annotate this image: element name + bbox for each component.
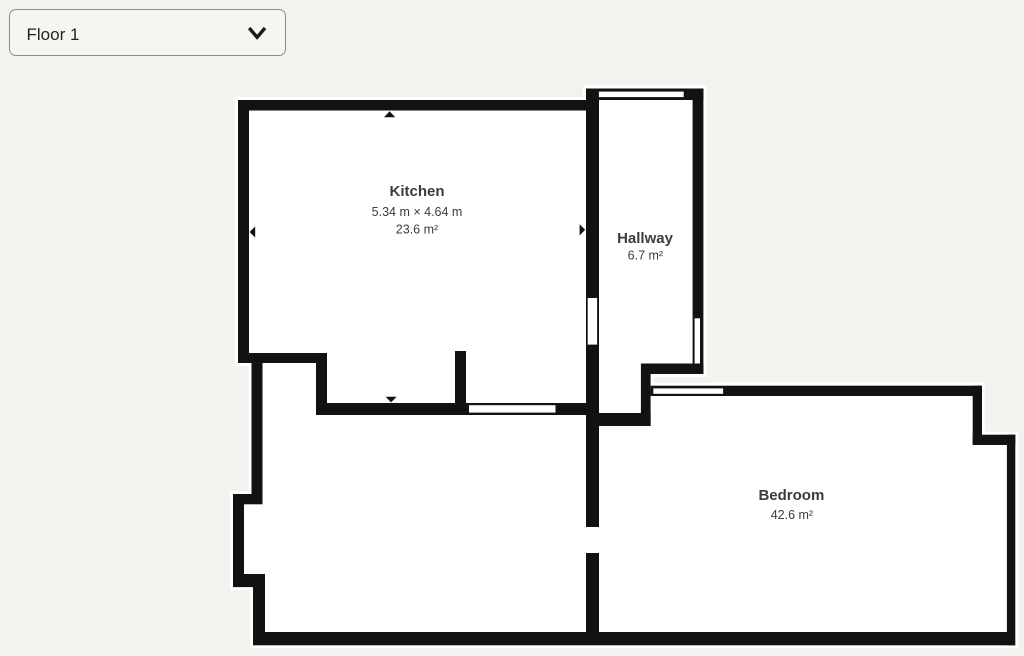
svg-text:Bedroom: Bedroom — [758, 487, 824, 504]
svg-text:Hallway: Hallway — [617, 230, 674, 247]
svg-text:23.6 m²: 23.6 m² — [396, 222, 438, 236]
svg-text:6.7 m²: 6.7 m² — [628, 248, 663, 262]
svg-text:Kitchen: Kitchen — [389, 183, 444, 200]
svg-text:42.6 m²: 42.6 m² — [771, 508, 813, 522]
svg-text:5.34 m × 4.64 m: 5.34 m × 4.64 m — [372, 205, 463, 219]
